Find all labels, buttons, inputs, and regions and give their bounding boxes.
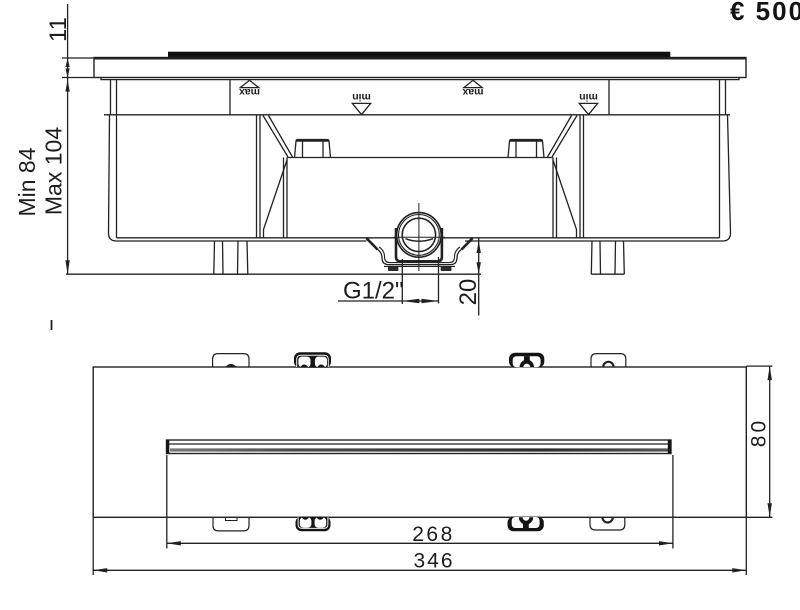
svg-text:346: 346	[413, 550, 454, 573]
svg-text:max: max	[462, 86, 483, 98]
svg-text:G1/2": G1/2"	[343, 278, 404, 305]
svg-text:min: min	[579, 91, 598, 103]
svg-text:11: 11	[45, 17, 72, 42]
svg-text:80: 80	[748, 418, 771, 447]
svg-text:Max 104: Max 104	[41, 127, 67, 215]
svg-text:20: 20	[455, 279, 482, 306]
svg-text:Min 84: Min 84	[14, 147, 40, 216]
svg-text:268: 268	[412, 523, 455, 546]
svg-text:min: min	[352, 91, 371, 103]
svg-text:max: max	[239, 86, 260, 98]
